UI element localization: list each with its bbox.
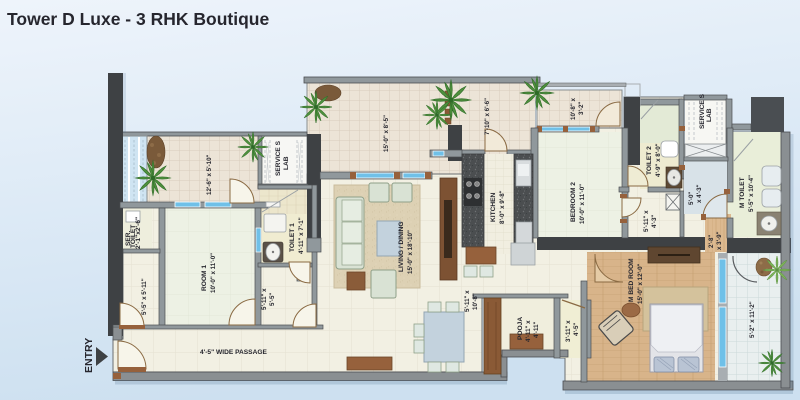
svg-text:10'-0" x 11'-0": 10'-0" x 11'-0" bbox=[579, 184, 586, 224]
svg-text:5'-5" x 10'-4": 5'-5" x 10'-4" bbox=[748, 175, 755, 212]
svg-text:4'-11" x: 4'-11" x bbox=[525, 320, 532, 342]
svg-text:LAB: LAB bbox=[706, 108, 713, 122]
svg-text:15'-0" x 18'-10": 15'-0" x 18'-10" bbox=[407, 230, 414, 274]
svg-text:4'-5" WIDE PASSAGE: 4'-5" WIDE PASSAGE bbox=[200, 349, 267, 356]
svg-text:LAB: LAB bbox=[283, 156, 290, 170]
svg-text:SERVICE S: SERVICE S bbox=[275, 140, 282, 176]
svg-text:x 3'-9": x 3'-9" bbox=[716, 231, 723, 250]
svg-text:4'-11": 4'-11" bbox=[533, 321, 540, 338]
svg-text:5'-11" x: 5'-11" x bbox=[261, 288, 268, 310]
svg-text:5'-5": 5'-5" bbox=[269, 293, 276, 306]
svg-text:5'-2" x 11'-2": 5'-2" x 11'-2" bbox=[749, 301, 756, 338]
svg-text:M TOILET: M TOILET bbox=[739, 177, 746, 208]
svg-text:x 4'-3": x 4'-3" bbox=[696, 184, 703, 203]
svg-text:TOILET 2: TOILET 2 bbox=[646, 146, 653, 175]
svg-text:5'-11" x: 5'-11" x bbox=[464, 290, 471, 312]
svg-text:3'-11" x: 3'-11" x bbox=[565, 320, 572, 342]
svg-text:8'-0" x 9'-8": 8'-0" x 9'-8" bbox=[499, 190, 506, 224]
svg-text:3'-2": 3'-2" bbox=[578, 102, 585, 115]
svg-text:2'-1"x2'-6": 2'-1"x2'-6" bbox=[135, 217, 142, 249]
svg-text:LIVING / DINING: LIVING / DINING bbox=[398, 221, 405, 272]
svg-text:SERVICE S: SERVICE S bbox=[699, 93, 706, 129]
svg-text:M BED ROOM: M BED ROOM bbox=[628, 258, 635, 302]
svg-text:5'-11" x: 5'-11" x bbox=[643, 210, 650, 232]
svg-text:12'-6" x 5'-10": 12'-6" x 5'-10" bbox=[206, 154, 213, 195]
svg-text:4'-11" x 7'-1": 4'-11" x 7'-1" bbox=[298, 217, 305, 254]
svg-text:5'-0": 5'-0" bbox=[688, 192, 695, 205]
svg-text:TOILET 1: TOILET 1 bbox=[289, 223, 296, 252]
svg-text:5'-5" x 5'-11": 5'-5" x 5'-11" bbox=[141, 278, 148, 315]
svg-text:10'-8": 10'-8" bbox=[472, 293, 479, 310]
svg-text:2'-8": 2'-8" bbox=[708, 235, 715, 248]
svg-text:Tower D Luxe - 3 RHK Boutique: Tower D Luxe - 3 RHK Boutique bbox=[7, 9, 269, 29]
svg-text:ROOM 1: ROOM 1 bbox=[201, 265, 208, 291]
svg-text:4'-3": 4'-3" bbox=[651, 215, 658, 228]
svg-text:4'-5": 4'-5" bbox=[573, 323, 580, 336]
svg-text:7'-10" x 6'-6": 7'-10" x 6'-6" bbox=[484, 98, 491, 135]
svg-text:KITCHEN: KITCHEN bbox=[490, 192, 497, 222]
svg-text:ENTRY: ENTRY bbox=[83, 338, 95, 373]
svg-text:15'-0" x 12'-0": 15'-0" x 12'-0" bbox=[637, 263, 644, 304]
svg-text:4'-9" x 8'-0": 4'-9" x 8'-0" bbox=[655, 143, 662, 177]
svg-text:15'-0" x 8'-5": 15'-0" x 8'-5" bbox=[383, 115, 390, 152]
svg-text:10'-8" x: 10'-8" x bbox=[570, 97, 577, 120]
svg-text:POOJA: POOJA bbox=[517, 317, 524, 340]
svg-text:BEDROOM 2: BEDROOM 2 bbox=[570, 182, 577, 222]
svg-text:10'-0" x 11'-0": 10'-0" x 11'-0" bbox=[210, 253, 217, 293]
